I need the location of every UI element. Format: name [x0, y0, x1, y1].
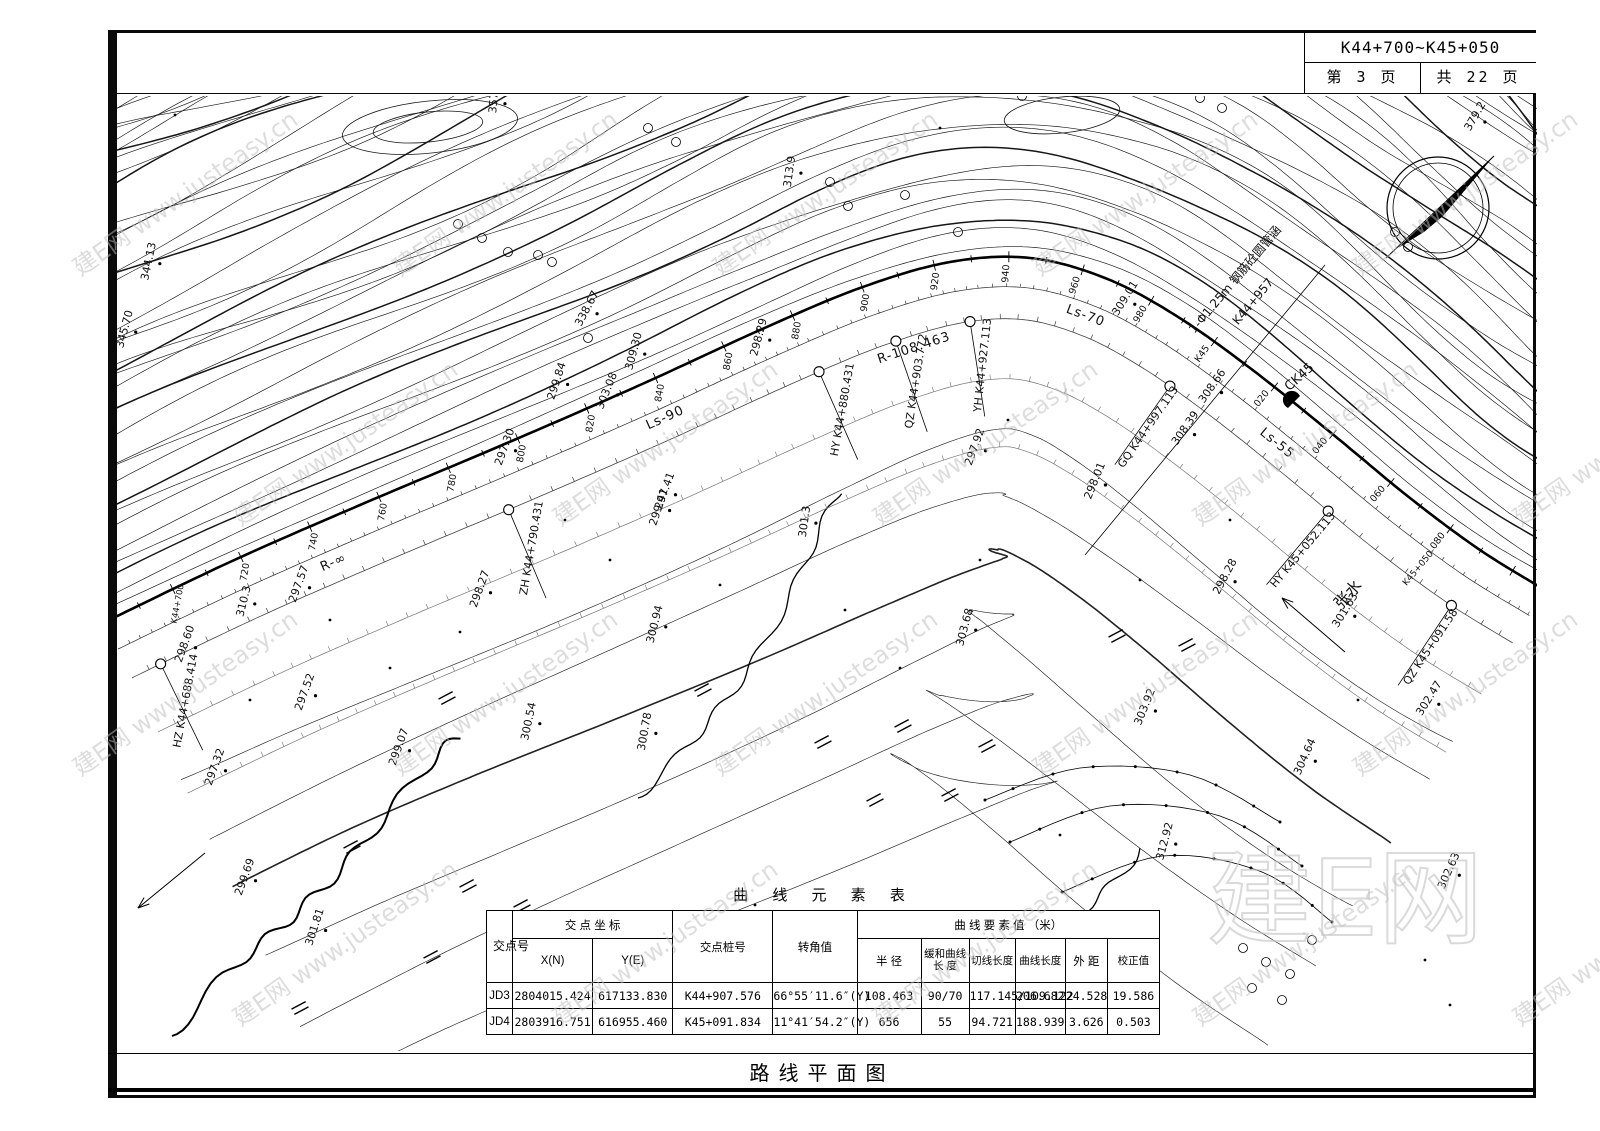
spot-dot: [459, 631, 462, 634]
contour-line: [210, 493, 1430, 840]
paddy-line: [942, 789, 956, 797]
table-row: JD4 2803916.751 616955.460 K45+091.834 1…: [487, 1009, 1160, 1035]
tree-row-dot: [1282, 882, 1285, 885]
survey-line-ticks: [147, 314, 1502, 670]
tree-symbol: [1278, 996, 1287, 1005]
elevation-label: 299.07: [386, 726, 411, 767]
alignment-label: Ls-55: [1257, 425, 1298, 462]
elevation-label: 298.01: [1082, 460, 1108, 501]
spot-elevation-dot: [768, 338, 771, 341]
cell-correction: 19.586: [1107, 983, 1159, 1009]
paddy-line: [1109, 630, 1123, 638]
spot-elevation-dot: [538, 722, 541, 725]
spot-elevation-dot: [308, 586, 311, 589]
tree-row-dot: [1331, 921, 1334, 924]
curve-point-label: HZ K44+688.414: [170, 653, 200, 749]
paddy-line: [1111, 635, 1125, 643]
tree-symbol: [1262, 958, 1271, 967]
station-label: 880: [790, 321, 804, 341]
tree-row-dot: [1122, 803, 1125, 806]
tree-symbol: [584, 334, 593, 343]
tree-row-dot: [1092, 765, 1095, 768]
header-radius: 半 径: [857, 939, 921, 983]
paddy-line: [817, 741, 831, 749]
map-labels: K44+700720740760780800820840860880900920…: [113, 92, 1488, 948]
elevation-label: 303.92: [1132, 686, 1158, 727]
header-stake: 交点桩号: [673, 911, 773, 983]
tree-row-dot: [1249, 867, 1252, 870]
feature-label: CK45: [1282, 360, 1317, 394]
paddy-line: [867, 794, 881, 802]
paddy-field-symbol: [292, 1002, 309, 1015]
tree-row-line: [985, 766, 1280, 822]
total-pages: 共 22 页: [1421, 63, 1536, 93]
title-block: K44+700~K45+050 第 3 页 共 22 页: [1304, 33, 1536, 93]
station-label: 860: [722, 351, 736, 371]
tree-row-dot: [1279, 821, 1282, 824]
spot-elevation-dot: [158, 262, 161, 265]
tree-row-dot: [1051, 773, 1054, 776]
paddy-line: [895, 720, 909, 728]
paddy-line: [981, 745, 995, 753]
cell-angle: 66°55′11.6″(Y): [773, 983, 857, 1009]
survey-line-ticks: [129, 283, 1530, 643]
spot-elevation-dot: [503, 102, 506, 105]
cell-length: 188.939: [1015, 1009, 1065, 1035]
station-label: 740: [307, 532, 321, 552]
cell-radius: 108.463: [857, 983, 921, 1009]
cell-spiral: 90/70: [921, 983, 969, 1009]
header-spiral: 缓和曲线 长 度: [921, 939, 969, 983]
tree-row-dot: [984, 799, 987, 802]
spot-dot: [844, 609, 847, 612]
feature-label: 张水: [1330, 576, 1366, 613]
station-label: 020: [1252, 388, 1272, 409]
cell-correction: 0.503: [1107, 1009, 1159, 1035]
paddy-field-symbol: [815, 736, 832, 749]
spot-elevation-dot: [489, 591, 492, 594]
curve-point-label: QZ K45+091.58: [1400, 606, 1460, 687]
cell-y: 617133.830: [593, 983, 673, 1009]
tree-row-dot: [1176, 770, 1179, 773]
flow-arrow: [138, 853, 205, 908]
elevation-label: 300.94: [644, 604, 666, 645]
spot-elevation-dot: [566, 383, 569, 386]
tree-symbol: [901, 191, 910, 200]
contour-line: [70, 179, 1587, 550]
paddy-field-symbol: [942, 789, 959, 802]
elevation-label: 302.47: [1413, 678, 1444, 718]
contour-line: [233, 549, 1391, 887]
tree-row-dot: [1165, 804, 1168, 807]
drawing-sheet: { "sheet": { "station_range": "K44+700~K…: [0, 0, 1600, 1131]
station-label: 940: [1000, 264, 1012, 283]
sheet-title-bar: 路线平面图: [108, 1053, 1536, 1092]
tree-symbol: [478, 234, 487, 243]
curve-point-marker: [156, 659, 166, 669]
paddy-line: [292, 1002, 306, 1010]
station-label: 840: [653, 383, 667, 403]
spot-dot: [329, 619, 332, 622]
station-label: 720: [238, 562, 252, 582]
curve-point-label: HY K45+052.113: [1268, 509, 1339, 590]
elevation-label: 299.84: [545, 361, 569, 402]
tree-symbol: [454, 220, 463, 229]
paddy-line: [294, 1007, 308, 1015]
station-label: 080: [1428, 530, 1448, 551]
spot-elevation-dot: [654, 732, 657, 735]
elevation-label: 313.9: [781, 155, 798, 188]
spot-elevation-dot: [668, 509, 671, 512]
tree-row-dot: [1215, 784, 1218, 787]
elevation-label: 301.3: [796, 505, 813, 538]
station-label: 920: [929, 272, 942, 291]
elevation-label: 302.63: [1435, 850, 1463, 890]
elevation-label: 338.67: [572, 288, 602, 328]
cell-stake: K45+091.834: [673, 1009, 773, 1035]
station-range: K44+700~K45+050: [1305, 33, 1536, 63]
elevation-label: 297.32: [202, 746, 227, 787]
tree-symbol: [1308, 936, 1317, 945]
paddy-line: [462, 885, 476, 893]
page-number: 第 3 页: [1305, 63, 1421, 93]
spot-elevation-dot: [1133, 303, 1136, 306]
cell-x: 2803916.751: [513, 1009, 593, 1035]
paddy-line: [426, 956, 440, 964]
elevation-label: 298.28: [1210, 556, 1240, 596]
header-elements: 曲 线 要 素 值 （米）: [857, 911, 1160, 939]
elevation-label: 303.08: [594, 370, 620, 411]
tree-row-dot: [1080, 811, 1083, 814]
tree-symbol: [1218, 104, 1227, 113]
spot-dot: [1357, 699, 1360, 702]
spot-elevation-dot: [1233, 580, 1236, 583]
paddy-field-symbol: [895, 720, 912, 733]
tree-row-dot: [1206, 811, 1209, 814]
contour-line: [0, 0, 1600, 191]
contour-line: [24, 82, 1600, 455]
sheet-title: 路线平面图: [750, 1057, 895, 1086]
header-ye: Y(E): [593, 939, 673, 983]
elevation-label: 301.81: [303, 907, 327, 948]
cell-tangent: 94.721: [969, 1009, 1015, 1035]
spot-elevation-dot: [254, 879, 257, 882]
table-row: JD3 2804015.424 617133.830 K44+907.576 6…: [487, 983, 1160, 1009]
spot-dot: [939, 127, 942, 130]
elevation-label: 300.54: [518, 701, 539, 741]
cell-length: 206.682: [1015, 983, 1065, 1009]
paddy-field-symbol: [344, 841, 361, 854]
stream: [638, 494, 842, 798]
tree-row-dot: [1252, 805, 1255, 808]
elevation-label: 298.29: [747, 317, 770, 358]
paddy-field-symbol: [867, 794, 884, 807]
spot-elevation-dot: [194, 646, 197, 649]
curve-point-marker: [965, 317, 975, 327]
tree-row-dot: [1277, 848, 1280, 851]
header-correction: 校正值: [1107, 939, 1159, 983]
elevation-label: 300.78: [635, 711, 654, 751]
contour-line: [62, 166, 1595, 534]
tree-symbol: [672, 138, 681, 147]
tree-row-dot: [1173, 854, 1176, 857]
spot-dot: [609, 559, 612, 562]
spot-elevation-dot: [314, 694, 317, 697]
spot-elevation-dot: [616, 393, 619, 396]
elevation-label: 357: [486, 92, 501, 114]
cell-spiral: 55: [921, 1009, 969, 1035]
contour-line: [181, 429, 1453, 780]
contour-line: [20, 76, 1600, 446]
paddy-line: [460, 880, 474, 888]
spot-dot: [899, 667, 902, 670]
spot-elevation-dot: [1314, 760, 1317, 763]
paddy-line: [815, 736, 829, 744]
tree-symbol: [548, 258, 557, 267]
cell-id: JD3: [487, 983, 513, 1009]
tree-symbol: [644, 124, 653, 133]
spot-elevation-dot: [674, 493, 677, 496]
spot-dot: [1229, 519, 1232, 522]
header-tangent: 切线长度: [969, 939, 1015, 983]
tree-row-dot: [1133, 861, 1136, 864]
cell-tangent: 117.145/109.122: [969, 983, 1015, 1009]
spot-elevation-dot: [134, 330, 137, 333]
elevation-label: 304.64: [1291, 736, 1319, 776]
spot-elevation-dot: [1458, 874, 1461, 877]
cell-y: 616955.460: [593, 1009, 673, 1035]
tree-row-dot: [1038, 828, 1041, 831]
header-external: 外 距: [1065, 939, 1107, 983]
cell-id: JD4: [487, 1009, 513, 1035]
tree-symbol: [1044, 84, 1053, 93]
compass-circle-inner: [1393, 163, 1483, 253]
curve-point-marker: [814, 367, 824, 377]
header-separator-line: [108, 93, 1536, 94]
paddy-field-symbol: [460, 880, 477, 893]
station-label: K45: [1193, 343, 1213, 364]
curve-table-block: 曲 线 元 素 表 交点号 交 点 坐 标 交点桩号 转角值 曲 线 要 素 值…: [486, 884, 1162, 1035]
spot-elevation-dot: [1483, 120, 1486, 123]
tree-row-dot: [1212, 857, 1215, 860]
tree-row-dot: [1012, 787, 1015, 790]
spot-elevation-dot: [324, 929, 327, 932]
curve-point-label: GQ K44+997.113: [1115, 384, 1181, 471]
summit-contour: [1002, 91, 1121, 139]
header-coords: 交 点 坐 标: [513, 911, 673, 939]
spot-elevation-dot: [799, 172, 802, 175]
spot-elevation-dot: [1174, 842, 1177, 845]
spot-dot: [1007, 419, 1010, 422]
elevation-label: 303.68: [953, 607, 976, 648]
elevation-label: 297.92: [962, 426, 987, 467]
paddy-field-symbol: [439, 692, 456, 705]
tree-symbol: [844, 202, 853, 211]
spot-elevation-dot: [984, 449, 987, 452]
paddy-line: [1181, 644, 1195, 652]
cell-stake: K44+907.576: [673, 983, 773, 1009]
contour-line: [83, 200, 1571, 576]
header-curvelen: 曲线长度: [1015, 939, 1065, 983]
spot-dot: [389, 667, 392, 670]
station-label: 780: [445, 473, 459, 493]
cell-x: 2804015.424: [513, 983, 593, 1009]
spot-dot: [1059, 834, 1062, 837]
spot-elevation-dot: [253, 602, 256, 605]
spot-elevation-dot: [1193, 433, 1196, 436]
elevation-label: 299.41: [647, 487, 671, 528]
curve-point-label: YH K44+927.113: [971, 318, 994, 414]
tree-row-dot: [1301, 865, 1304, 868]
paddy-line: [697, 689, 711, 697]
contour-line: [43, 95, 1600, 495]
station-label: 820: [584, 414, 598, 434]
paddy-line: [439, 692, 453, 700]
map-symbols: [134, 84, 1494, 1015]
spot-dot: [1449, 1004, 1452, 1007]
spot-dot: [564, 519, 567, 522]
curve-table-title: 曲 线 元 素 表: [486, 884, 1162, 910]
station-label: 760: [376, 502, 390, 522]
paddy-field-symbol: [1179, 639, 1196, 652]
paddy-line: [897, 725, 911, 733]
paddy-line: [979, 740, 993, 748]
spot-dot: [1424, 959, 1427, 962]
tree-symbol: [1196, 94, 1205, 103]
elevation-label: 344.13: [138, 241, 159, 281]
tree-row-dot: [1311, 904, 1314, 907]
tree-row-dot: [1009, 841, 1012, 844]
elevation-label: 379.2: [1461, 99, 1488, 133]
spot-elevation-dot: [1353, 615, 1356, 618]
survey-line: [118, 287, 1529, 649]
spot-elevation-dot: [664, 625, 667, 628]
curve-point-label: ZH K44+790.431: [517, 500, 546, 596]
elevation-label: 310.3: [233, 584, 253, 618]
spot-elevation-dot: [1104, 483, 1107, 486]
cell-external: 24.528: [1065, 983, 1107, 1009]
station-label: 980: [1131, 304, 1150, 325]
paddy-line: [869, 799, 883, 807]
paddy-line: [441, 697, 455, 705]
spot-elevation-dot: [1154, 709, 1157, 712]
tree-symbol: [1286, 970, 1295, 979]
contour-line: [18, 61, 1600, 442]
spot-elevation-dot: [814, 522, 817, 525]
spot-dot: [979, 559, 982, 562]
elevation-label: 298.27: [467, 568, 492, 609]
paddy-field-symbol: [979, 740, 996, 753]
spot-dot: [249, 699, 252, 702]
curve-element-table: 交点号 交 点 坐 标 交点桩号 转角值 曲 线 要 素 值 （米） X(N) …: [486, 910, 1160, 1035]
station-label: 040: [1310, 435, 1330, 456]
curve-point-label: HY K44+880.431: [828, 362, 857, 457]
cell-external: 3.626: [1065, 1009, 1107, 1035]
paddy-line: [1179, 639, 1193, 647]
tree-row-dot: [1134, 765, 1137, 768]
spot-elevation-dot: [1437, 703, 1440, 706]
elevation-label: 308.39: [1169, 408, 1202, 447]
station-label: 800: [515, 444, 529, 464]
spot-elevation-dot: [595, 312, 598, 315]
header-intersection-no: 交点号: [487, 911, 513, 983]
spot-dot: [174, 114, 177, 117]
spot-elevation-dot: [224, 769, 227, 772]
tree-symbol: [1239, 944, 1248, 953]
alignment-label: Ls-70: [1064, 302, 1107, 330]
spot-dot: [719, 584, 722, 587]
cell-angle: 11°41′54.2″(Y): [773, 1009, 857, 1035]
spot-elevation-dot: [643, 352, 646, 355]
north-compass: [1386, 156, 1494, 259]
station-label: 060: [1368, 484, 1388, 505]
tree-symbol: [1248, 984, 1257, 993]
spot-dot: [1139, 579, 1142, 582]
tree-row-dot: [1243, 825, 1246, 828]
header-angle: 转角值: [773, 911, 857, 983]
elevation-label: 297.52: [292, 671, 317, 712]
alignment-label: R-∞: [318, 550, 349, 574]
spot-elevation-dot: [408, 749, 411, 752]
elevation-label: 297.57: [286, 563, 311, 604]
station-label: 960: [1067, 275, 1083, 296]
station-label: 900: [859, 293, 873, 313]
spot-elevation-dot: [974, 628, 977, 631]
curve-point-marker: [504, 505, 514, 515]
alignment-label: Ls-90: [644, 403, 687, 433]
tree-row-dot: [1091, 877, 1094, 880]
